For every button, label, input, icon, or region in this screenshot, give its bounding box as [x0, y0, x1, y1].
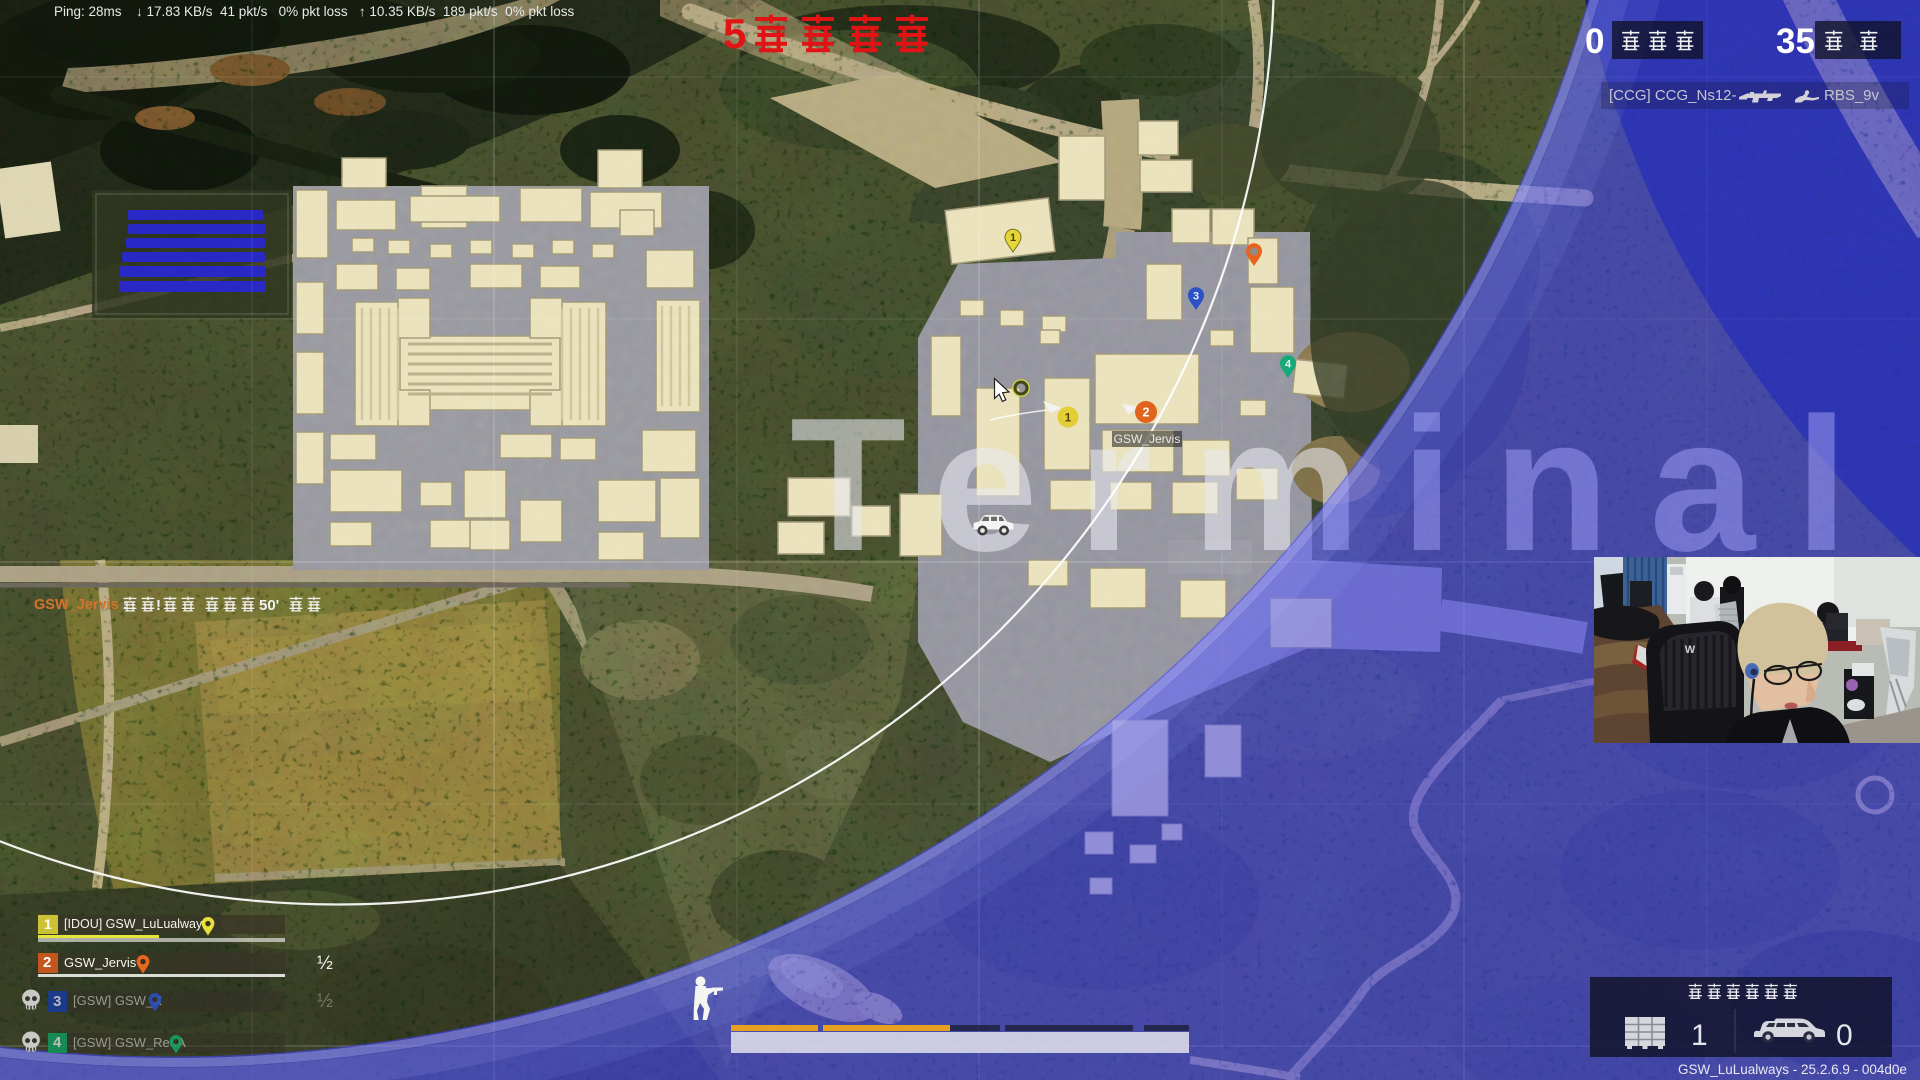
svg-text:W: W — [1685, 644, 1696, 656]
svg-text:5: 5 — [723, 10, 746, 56]
svg-text:1: 1 — [1010, 232, 1016, 244]
svg-text:!: ! — [156, 597, 161, 614]
svg-text:2: 2 — [1143, 406, 1150, 420]
svg-text:0: 0 — [1836, 1019, 1853, 1052]
svg-text:1: 1 — [1691, 1019, 1708, 1052]
svg-text:3: 3 — [1193, 290, 1199, 302]
svg-text:1: 1 — [1065, 411, 1072, 425]
svg-text:50': 50' — [259, 597, 279, 614]
svg-text:GSW_Jervis: GSW_Jervis — [1114, 432, 1181, 446]
svg-text:4: 4 — [1285, 358, 1292, 370]
